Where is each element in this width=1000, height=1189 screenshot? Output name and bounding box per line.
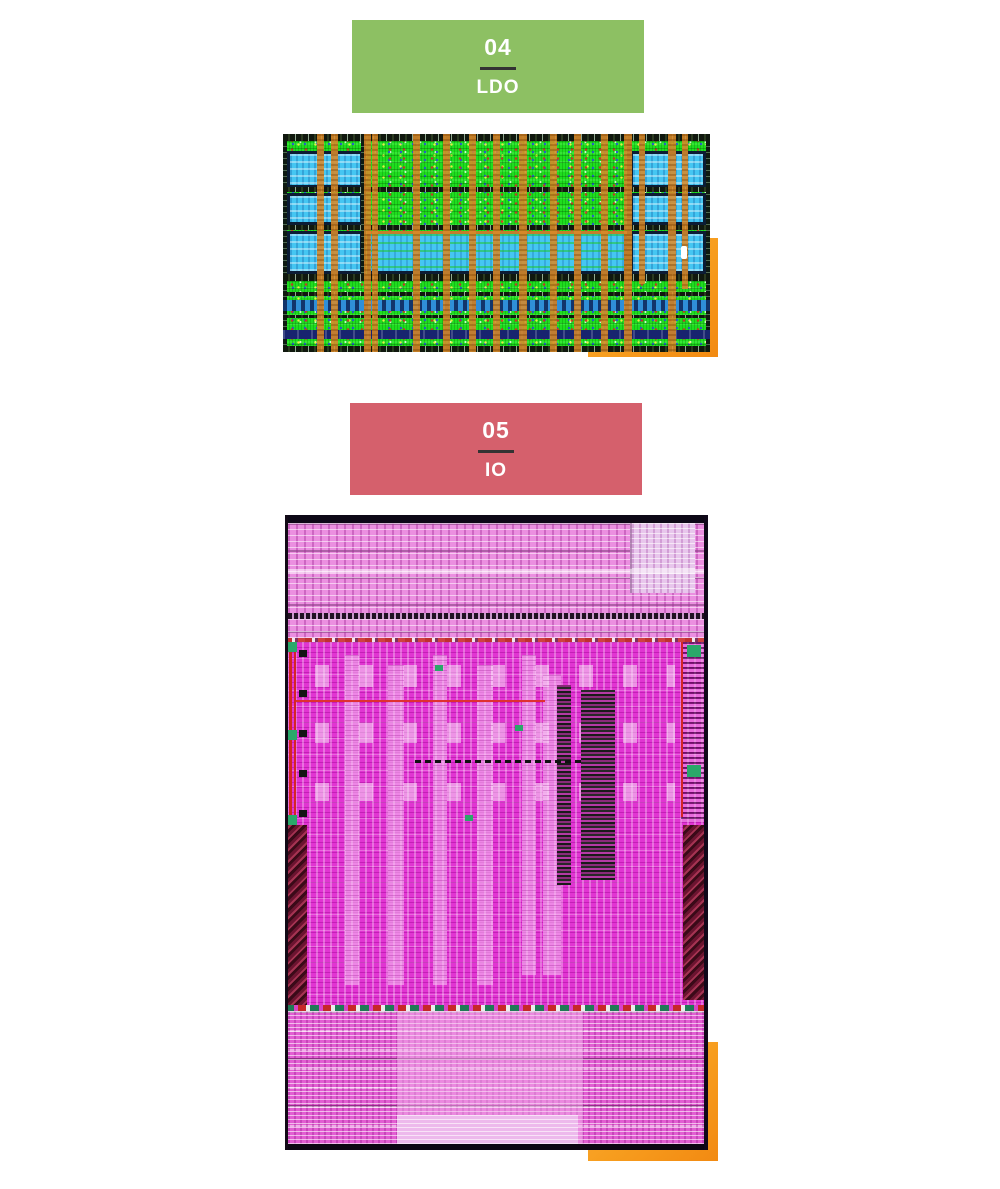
io-red-hline: [295, 700, 545, 702]
section-05-divider: [478, 450, 514, 453]
io-teal-block: [687, 765, 701, 777]
section-05-header: 05 IO: [350, 403, 642, 495]
io-teal-block: [515, 725, 523, 731]
io-light-column: [345, 655, 359, 985]
ldo-orange-stripe: [682, 134, 688, 289]
ldo-right-border: [706, 134, 710, 352]
ldo-orange-stripe: [550, 134, 557, 352]
section-05-number: 05: [482, 419, 510, 442]
io-bottom-border: [285, 1144, 708, 1150]
io-bottom-light-block: [397, 1115, 578, 1145]
io-light-column: [477, 665, 493, 985]
ldo-orange-stripe: [639, 134, 645, 284]
section-04-title: LDO: [476, 78, 519, 97]
section-04-divider: [480, 67, 516, 70]
ldo-orange-stripe: [364, 134, 371, 352]
section-04-number: 04: [484, 36, 512, 59]
io-light-column: [388, 665, 404, 985]
io-left-border: [285, 515, 288, 1150]
ldo-left-border: [283, 134, 287, 352]
io-cell-row: [315, 665, 675, 687]
io-dark-noisy-column: [581, 690, 615, 880]
ldo-cyan-block: [287, 193, 363, 225]
io-top-border: [285, 515, 708, 523]
io-light-row: [288, 569, 704, 574]
io-red-vline: [681, 642, 683, 817]
io-green-block: [288, 642, 297, 652]
io-right-column: [681, 642, 704, 822]
io-chip-layout-image: [285, 515, 708, 1150]
io-cell-row: [315, 783, 675, 801]
io-light-column: [433, 655, 447, 985]
ldo-orange-stripe: [331, 134, 338, 352]
io-dark-hline: [415, 760, 585, 763]
ldo-orange-stripe: [624, 134, 632, 352]
io-teal-block: [465, 815, 473, 821]
io-dark-noisy-column: [557, 685, 571, 885]
io-dark-dash-row: [288, 613, 704, 619]
section-04-header: 04 LDO: [352, 20, 644, 113]
ldo-orange-stripe: [372, 134, 378, 352]
ldo-chip-layout-image: [283, 134, 710, 352]
io-right-border: [704, 515, 708, 1150]
page: 04 LDO: [0, 0, 1000, 1189]
ldo-orange-stripe: [317, 134, 324, 352]
io-cell-row: [315, 723, 675, 743]
io-light-column: [522, 655, 536, 975]
ldo-orange-stripe: [519, 134, 527, 352]
ldo-orange-stripe: [668, 134, 676, 352]
io-lavender-block: [630, 523, 695, 593]
ldo-orange-stripe: [601, 134, 608, 352]
ldo-orange-stripe: [413, 134, 420, 352]
ldo-orange-stripe: [493, 134, 500, 352]
section-05-title: IO: [485, 461, 507, 480]
text-cursor-artifact: [681, 246, 687, 259]
ldo-cyan-block: [287, 151, 363, 188]
io-teal-block: [435, 665, 443, 671]
io-green-block: [288, 815, 297, 825]
ldo-orange-stripe: [574, 134, 581, 352]
ldo-orange-stripe: [469, 134, 476, 352]
io-teal-block: [687, 645, 701, 657]
ldo-orange-hline: [367, 231, 627, 234]
io-maroon-hatch-left: [285, 825, 307, 1005]
ldo-orange-stripe: [443, 134, 450, 352]
ldo-cyan-block: [287, 231, 363, 274]
io-green-block: [288, 730, 297, 740]
